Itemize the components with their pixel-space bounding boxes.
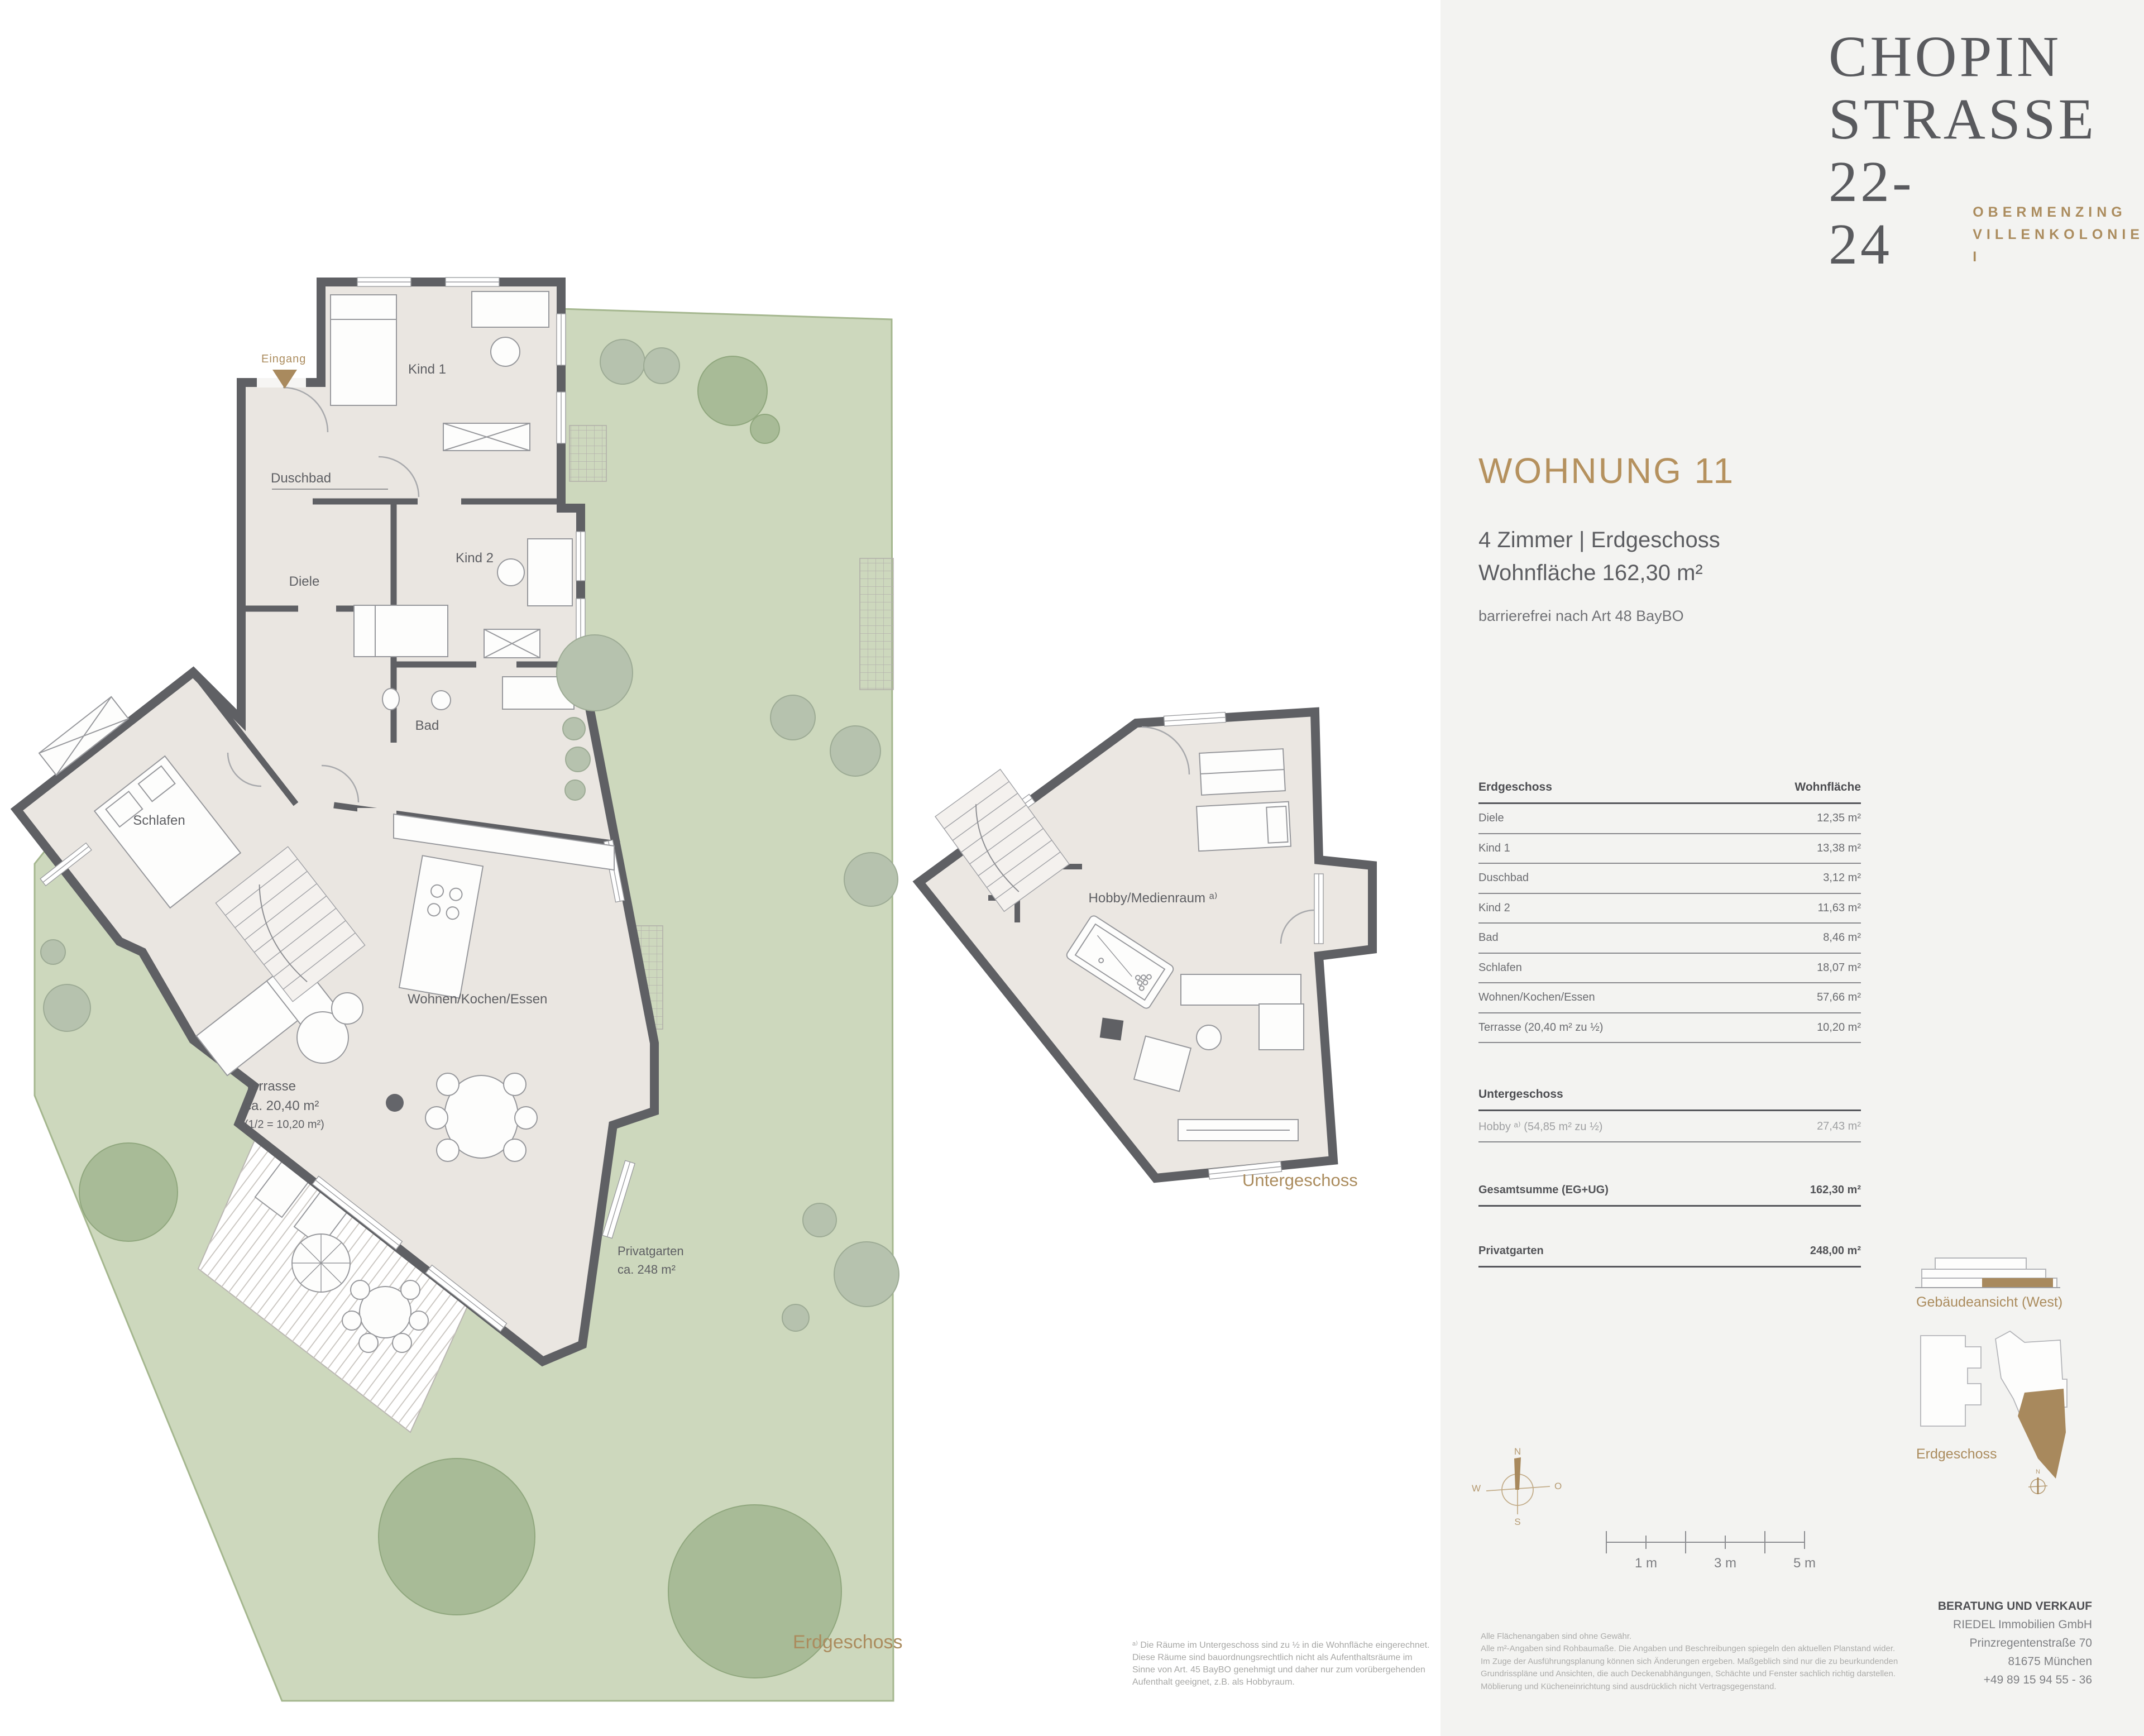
elevation-highlight <box>1982 1278 2053 1288</box>
eg-floorplan-drawing <box>17 278 899 1701</box>
elevation-caption: Gebäudeansicht (West) <box>1916 1294 2062 1311</box>
compass-e-label: O <box>1554 1481 1562 1492</box>
compass-s-label: S <box>1511 1517 1524 1528</box>
siteplan-sketch <box>1921 1331 2067 1494</box>
room-area: 11,63 m² <box>1818 902 1861 915</box>
ug-pillar <box>1100 1018 1124 1041</box>
scale-bar <box>1606 1531 1805 1553</box>
room-label-duschbad: Duschbad <box>271 471 331 486</box>
table-row: Bad 8,46 m² <box>1478 924 1861 954</box>
listing-living-area: Wohnfläche 162,30 m² <box>1478 557 1720 590</box>
terrace-area: ca. 20,40 m² <box>245 1097 324 1116</box>
expose-page: Eingang Kind 1 Duschbad Diele Kind 2 Bad… <box>0 0 2144 1736</box>
room-label-hobby: Hobby/Medienraum ᵃ⁾ <box>1083 890 1223 906</box>
room-area: 10,20 m² <box>1817 1021 1861 1034</box>
table-row: Diele 12,35 m² <box>1478 804 1861 834</box>
brand-line3: 22-24 <box>1829 151 1957 276</box>
private-garden-label: Privatgarten ca. 248 m² <box>618 1242 684 1279</box>
brand-line1: CHOPIN <box>1829 26 2144 88</box>
footnote-basement: ᵃ⁾ Die Räume im Untergeschoss sind zu ½ … <box>1132 1639 1430 1689</box>
table-row: Wohnen/Kochen/Essen 57,66 m² <box>1478 983 1861 1013</box>
room-area: 12,35 m² <box>1817 812 1861 825</box>
brand-line2: STRASSE <box>1829 88 2144 151</box>
room-name: Bad <box>1478 931 1499 944</box>
table-row: Kind 2 11,63 m² <box>1478 894 1861 924</box>
entry-label: Eingang <box>261 353 306 366</box>
room-label-wohnen: Wohnen/Kochen/Essen <box>408 992 547 1007</box>
patio-grid <box>860 558 893 690</box>
total-value: 162,30 m² <box>1810 1184 1861 1197</box>
contact-header: BERATUNG UND VERKAUF <box>1938 1597 2092 1615</box>
terrace-label: Terrasse ca. 20,40 m² (1/2 = 10,20 m²) <box>245 1077 324 1134</box>
room-name: Schlafen <box>1478 962 1522 974</box>
room-area: 3,12 m² <box>1823 872 1861 884</box>
room-name: Kind 2 <box>1478 902 1510 915</box>
area-table-ug: Untergeschoss Hobby ᵃ⁾ (54,85 m² zu ½) 2… <box>1478 1088 1861 1142</box>
total-label: Gesamtsumme (EG+UG) <box>1478 1184 1609 1197</box>
siteplan-caption: Erdgeschoss <box>1916 1446 1997 1462</box>
accessibility-note: barrierefrei nach Art 48 BayBO <box>1478 608 1684 625</box>
ug-header: Untergeschoss <box>1478 1088 1563 1101</box>
total-sum-block: Gesamtsumme (EG+UG) 162,30 m² <box>1478 1176 1861 1207</box>
room-name: Kind 1 <box>1478 842 1510 855</box>
contact-company: RIEDEL Immobilien GmbH <box>1938 1615 2092 1634</box>
col-room-header: Erdgeschoss <box>1478 781 1552 794</box>
ug-shaft-window <box>1314 874 1323 944</box>
room-area: 18,07 m² <box>1817 962 1861 974</box>
brand-tagline-line2: VILLENKOLONIE I <box>1973 223 2144 268</box>
terrace-name: Terrasse <box>245 1077 324 1097</box>
table-row: Terrasse (20,40 m² zu ½) 10,20 m² <box>1478 1013 1861 1044</box>
garden-row: Privatgarten 248,00 m² <box>1478 1237 1861 1268</box>
disclaimer-line: Alle m²-Angaben sind Rohbaumaße. Die Ang… <box>1481 1643 1898 1655</box>
room-label-diele: Diele <box>274 574 335 590</box>
table-row: Hobby ᵃ⁾ (54,85 m² zu ½) 27,43 m² <box>1478 1111 1861 1142</box>
listing-subtitle: 4 Zimmer | Erdgeschoss Wohnfläche 162,30… <box>1478 524 1720 590</box>
parasol-icon <box>292 1234 350 1292</box>
listing-rooms-floor: 4 Zimmer | Erdgeschoss <box>1478 524 1720 557</box>
scale-label-3m: 3 m <box>1703 1556 1748 1571</box>
disclaimer-line: Im Zuge der Ausführungsplanung können si… <box>1481 1656 1898 1668</box>
footnote-line: Diese Räume sind bauordnungsrechtlich ni… <box>1132 1652 1430 1664</box>
scale-label-1m: 1 m <box>1624 1556 1668 1571</box>
room-name: Diele <box>1478 812 1504 825</box>
page-title: WOHNUNG 11 <box>1478 450 1735 491</box>
table-header: Untergeschoss <box>1478 1088 1861 1111</box>
plan-dot <box>386 1094 404 1112</box>
room-name: Terrasse (20,40 m² zu ½) <box>1478 1021 1603 1034</box>
contact-block: BERATUNG UND VERKAUF RIEDEL Immobilien G… <box>1938 1597 2092 1689</box>
compass-icon <box>1486 1457 1550 1514</box>
footnote-line: Sinne von Art. 45 BayBO genehmigt und da… <box>1132 1664 1430 1676</box>
compass-n-label: N <box>1510 1446 1525 1457</box>
siteplan-apartment-highlight <box>2018 1389 2066 1479</box>
brand-tagline: OBERMENZING VILLENKOLONIE I <box>1973 201 2144 268</box>
brand-logo: CHOPIN STRASSE 22-24 OBERMENZING VILLENK… <box>1829 26 2144 276</box>
table-row: Schlafen 18,07 m² <box>1478 954 1861 984</box>
private-garden-area: ca. 248 m² <box>618 1260 684 1279</box>
contact-phone: +49 89 15 94 55 - 36 <box>1938 1671 2092 1689</box>
ug-caption: Untergeschoss <box>1242 1170 1358 1190</box>
garden-sum-block: Privatgarten 248,00 m² <box>1478 1237 1861 1268</box>
disclaimer-line: Grundrisspläne und Ansichten, die auch D… <box>1481 1668 1898 1680</box>
terrace-half-area: (1/2 = 10,20 m²) <box>245 1116 324 1134</box>
table-row: Kind 1 13,38 m² <box>1478 834 1861 864</box>
footnote-line: Aufenthalt geeignet, z.B. als Hobbyraum. <box>1132 1676 1430 1689</box>
eg-caption: Erdgeschoss <box>793 1632 903 1653</box>
room-area: 13,38 m² <box>1817 842 1861 855</box>
room-label-schlafen: Schlafen <box>120 813 198 829</box>
table-row: Duschbad 3,12 m² <box>1478 864 1861 894</box>
room-name: Wohnen/Kochen/Essen <box>1478 991 1595 1004</box>
patio-grid <box>569 425 606 481</box>
contact-city: 81675 München <box>1938 1652 2092 1671</box>
garden-value: 248,00 m² <box>1810 1245 1861 1257</box>
room-area: 27,43 m² <box>1817 1120 1861 1133</box>
compass-w-label: W <box>1472 1483 1481 1494</box>
disclaimer-line: Möblierung und Kücheneinrichtung sind au… <box>1481 1681 1898 1693</box>
mini-compass-n-label: N <box>2034 1469 2042 1475</box>
ug-floorplan-drawing <box>919 712 1372 1179</box>
mini-compass-icon <box>2028 1477 2047 1494</box>
room-area: 57,66 m² <box>1817 991 1861 1004</box>
garden-label: Privatgarten <box>1478 1245 1544 1257</box>
room-label-kind2: Kind 2 <box>438 551 511 566</box>
private-garden-name: Privatgarten <box>618 1242 684 1260</box>
disclaimer-block: Alle Flächenangaben sind ohne Gewähr. Al… <box>1481 1630 1898 1693</box>
room-label-bad: Bad <box>402 718 452 734</box>
total-row: Gesamtsumme (EG+UG) 162,30 m² <box>1478 1176 1861 1207</box>
footnote-line: ᵃ⁾ Die Räume im Untergeschoss sind zu ½ … <box>1132 1639 1430 1652</box>
elevation-sketch <box>1915 1258 2060 1288</box>
contact-street: Prinzregentenstraße 70 <box>1938 1634 2092 1652</box>
room-label-kind1: Kind 1 <box>391 362 463 377</box>
table-header: Erdgeschoss Wohnfläche <box>1478 781 1861 804</box>
scale-label-5m: 5 m <box>1782 1556 1827 1571</box>
room-area: 8,46 m² <box>1823 931 1861 944</box>
disclaimer-line: Alle Flächenangaben sind ohne Gewähr. <box>1481 1630 1898 1643</box>
brand-tagline-line1: OBERMENZING <box>1973 201 2144 223</box>
area-table-eg: Erdgeschoss Wohnfläche Diele 12,35 m² Ki… <box>1478 781 1861 1043</box>
room-name: Hobby ᵃ⁾ (54,85 m² zu ½) <box>1478 1120 1602 1134</box>
room-name: Duschbad <box>1478 872 1529 884</box>
col-area-header: Wohnfläche <box>1794 781 1861 794</box>
